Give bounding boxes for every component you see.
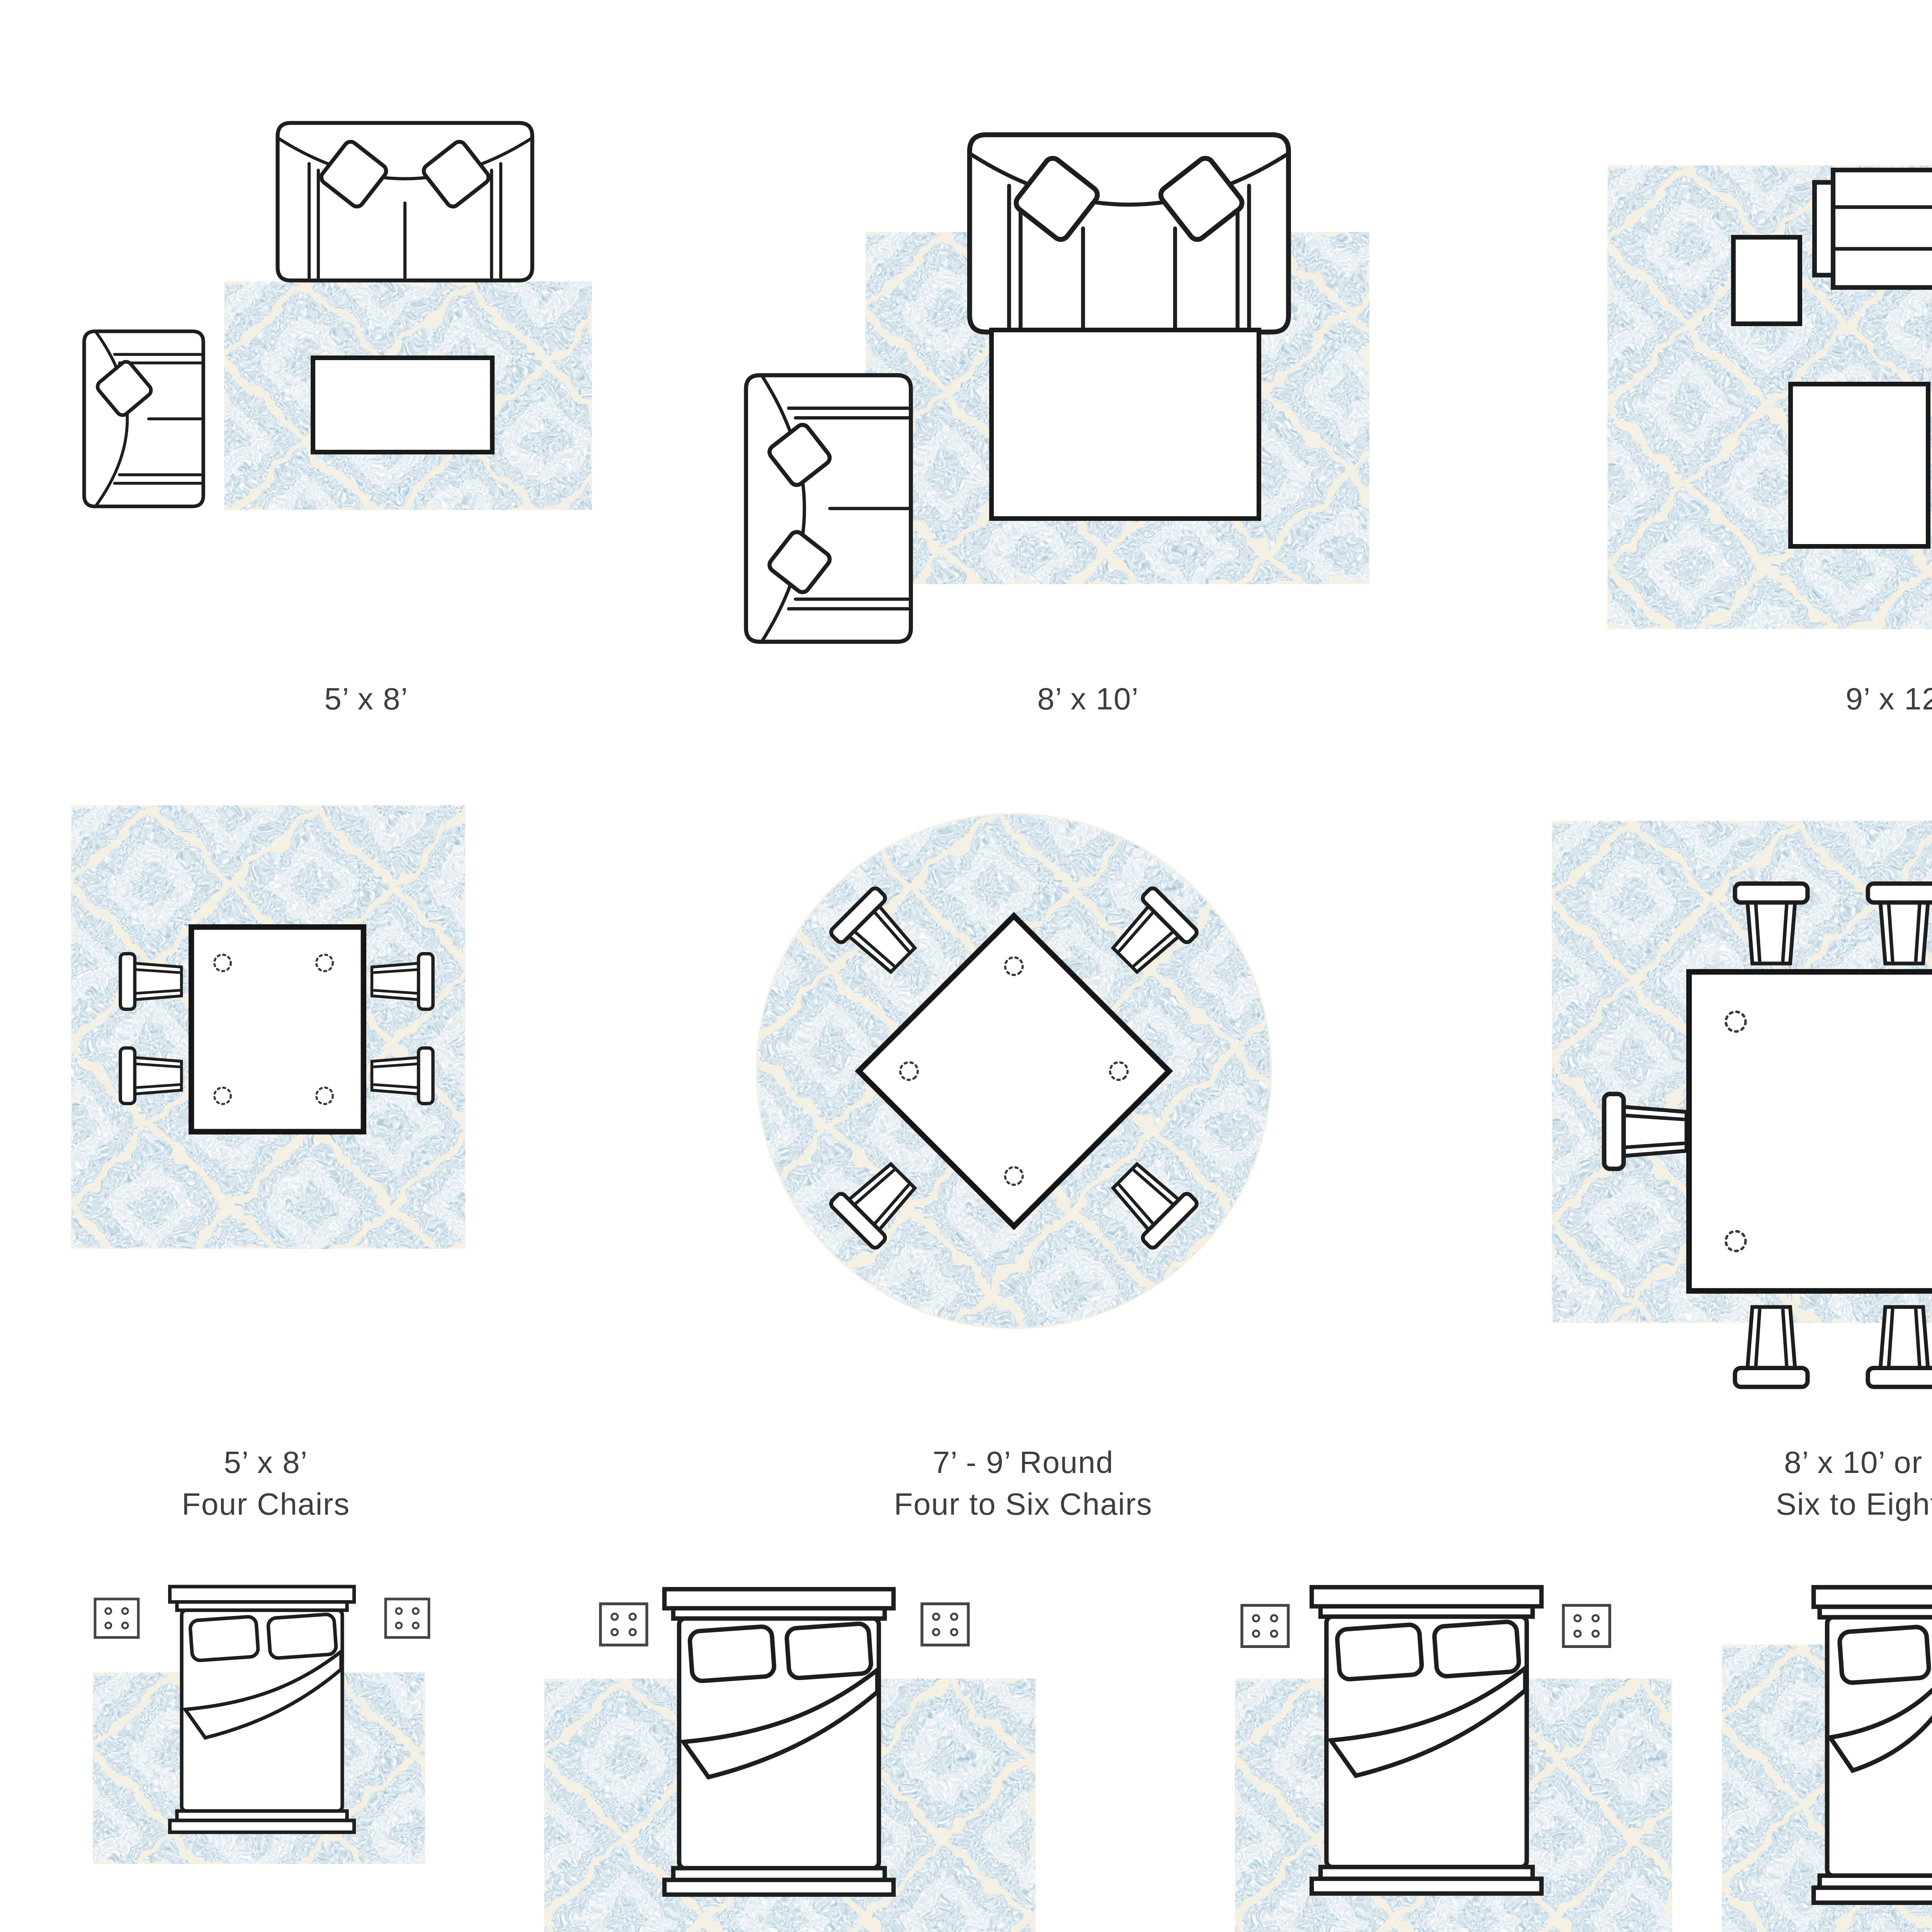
nightstand-icon [597, 1601, 651, 1648]
nightstand-icon [1560, 1603, 1614, 1649]
nightstand-icon [90, 1597, 144, 1640]
rug-size-guide: 5’ x 8’ 8’ x 10’ [0, 0, 1932, 1932]
bedroom-row: 5’ x 8’ Full Size Bed 8’ x 10’ or 9’ x 1… [0, 0, 1932, 1932]
full-bed-icon [155, 1584, 369, 1835]
king-bed-icon [1306, 1584, 1547, 1896]
nightstand-icon [918, 1601, 972, 1648]
nightstand-icon [1238, 1603, 1292, 1649]
queen-bed-icon [662, 1584, 896, 1900]
nightstand-icon [380, 1597, 434, 1640]
twin-bed-icon [1810, 1584, 1932, 1906]
